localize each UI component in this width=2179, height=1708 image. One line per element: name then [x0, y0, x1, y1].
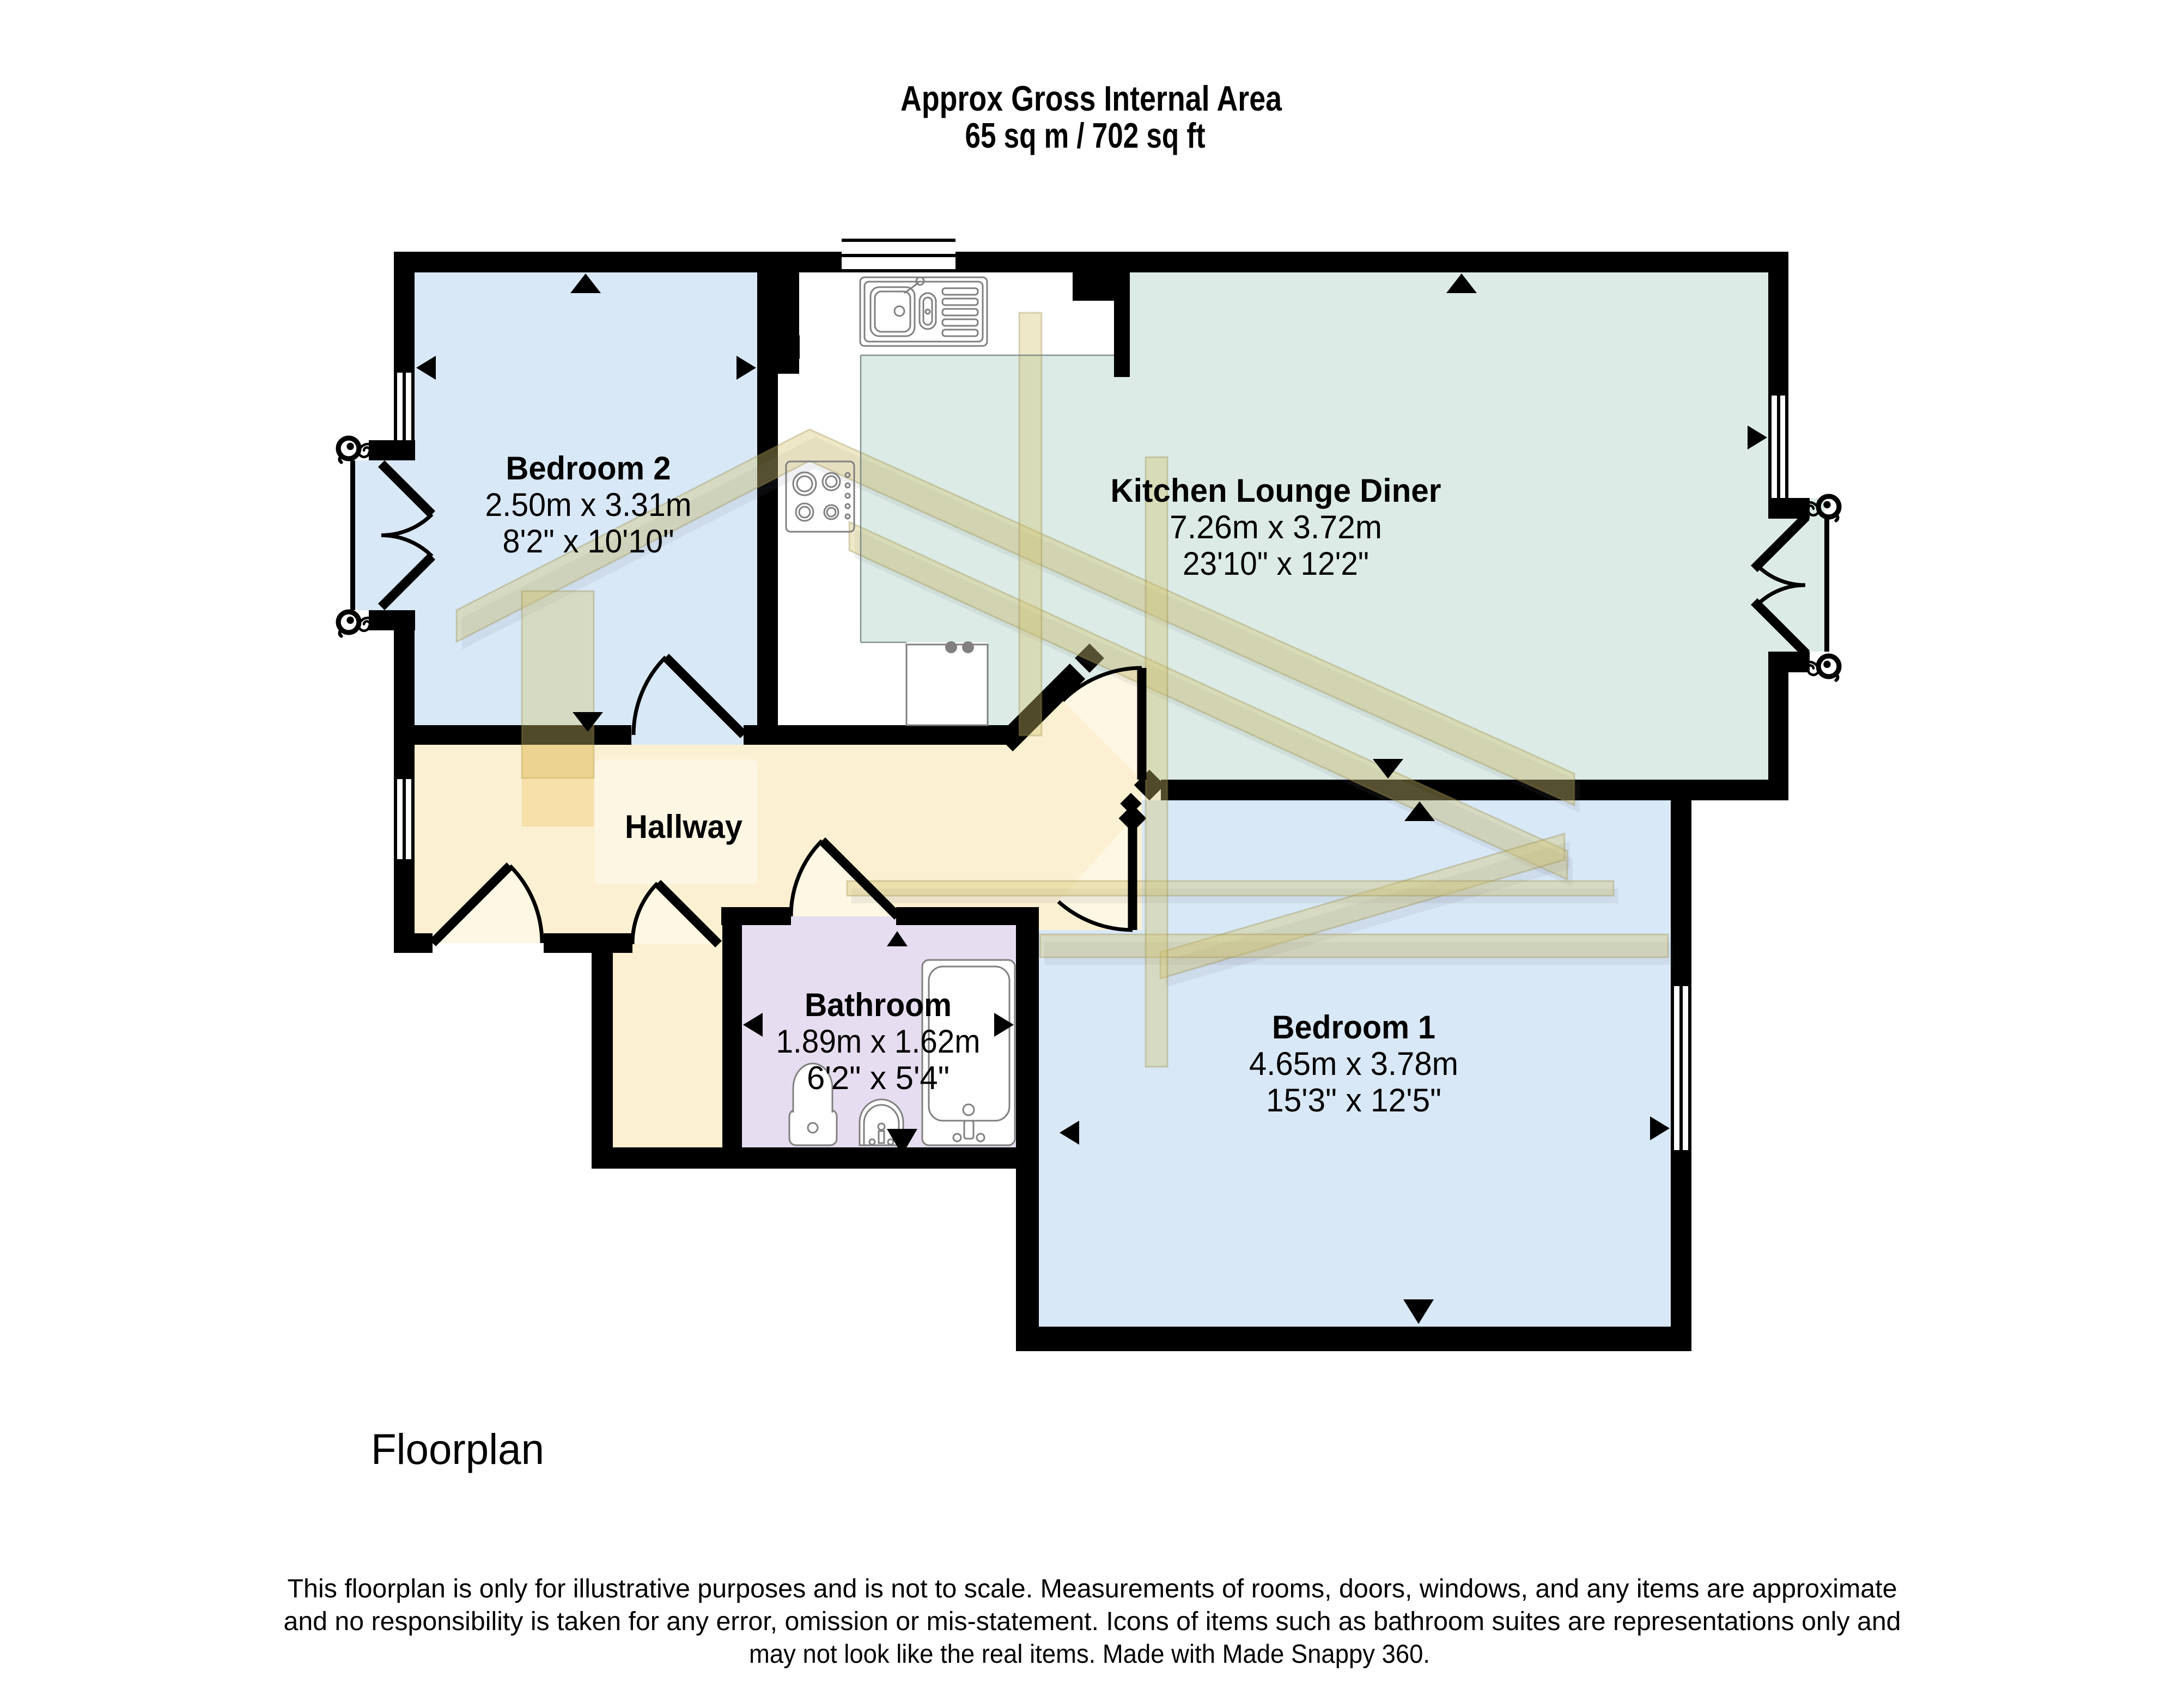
- svg-text:7.26m x 3.72m: 7.26m x 3.72m: [1170, 509, 1382, 545]
- svg-text:Hallway: Hallway: [625, 809, 743, 845]
- svg-text:Kitchen Lounge Diner: Kitchen Lounge Diner: [1111, 472, 1441, 509]
- svg-text:This floorplan is only for ill: This floorplan is only for illustrative …: [288, 1575, 1897, 1603]
- svg-text:and no responsibility is taken: and no responsibility is taken for any e…: [284, 1607, 1901, 1636]
- svg-text:4.65m x 3.78m: 4.65m x 3.78m: [1249, 1046, 1458, 1082]
- svg-text:Bedroom 1: Bedroom 1: [1272, 1009, 1435, 1046]
- svg-text:may not look like the real ite: may not look like the real items. Made w…: [749, 1640, 1430, 1669]
- svg-text:Bedroom 2: Bedroom 2: [506, 450, 671, 487]
- svg-text:Bathroom: Bathroom: [805, 987, 952, 1023]
- svg-text:Approx Gross Internal Area: Approx Gross Internal Area: [900, 78, 1282, 118]
- svg-text:23'10" x 12'2": 23'10" x 12'2": [1183, 545, 1369, 582]
- svg-text:15'3" x 12'5": 15'3" x 12'5": [1266, 1082, 1441, 1119]
- svg-text:8'2" x 10'10": 8'2" x 10'10": [503, 523, 674, 560]
- svg-text:Floorplan: Floorplan: [371, 1425, 544, 1473]
- svg-text:1.89m x 1.62m: 1.89m x 1.62m: [776, 1023, 981, 1060]
- svg-text:2.50m x 3.31m: 2.50m x 3.31m: [485, 487, 692, 523]
- svg-text:6'2" x 5'4": 6'2" x 5'4": [807, 1060, 949, 1096]
- svg-text:65 sq m / 702 sq ft: 65 sq m / 702 sq ft: [965, 116, 1206, 155]
